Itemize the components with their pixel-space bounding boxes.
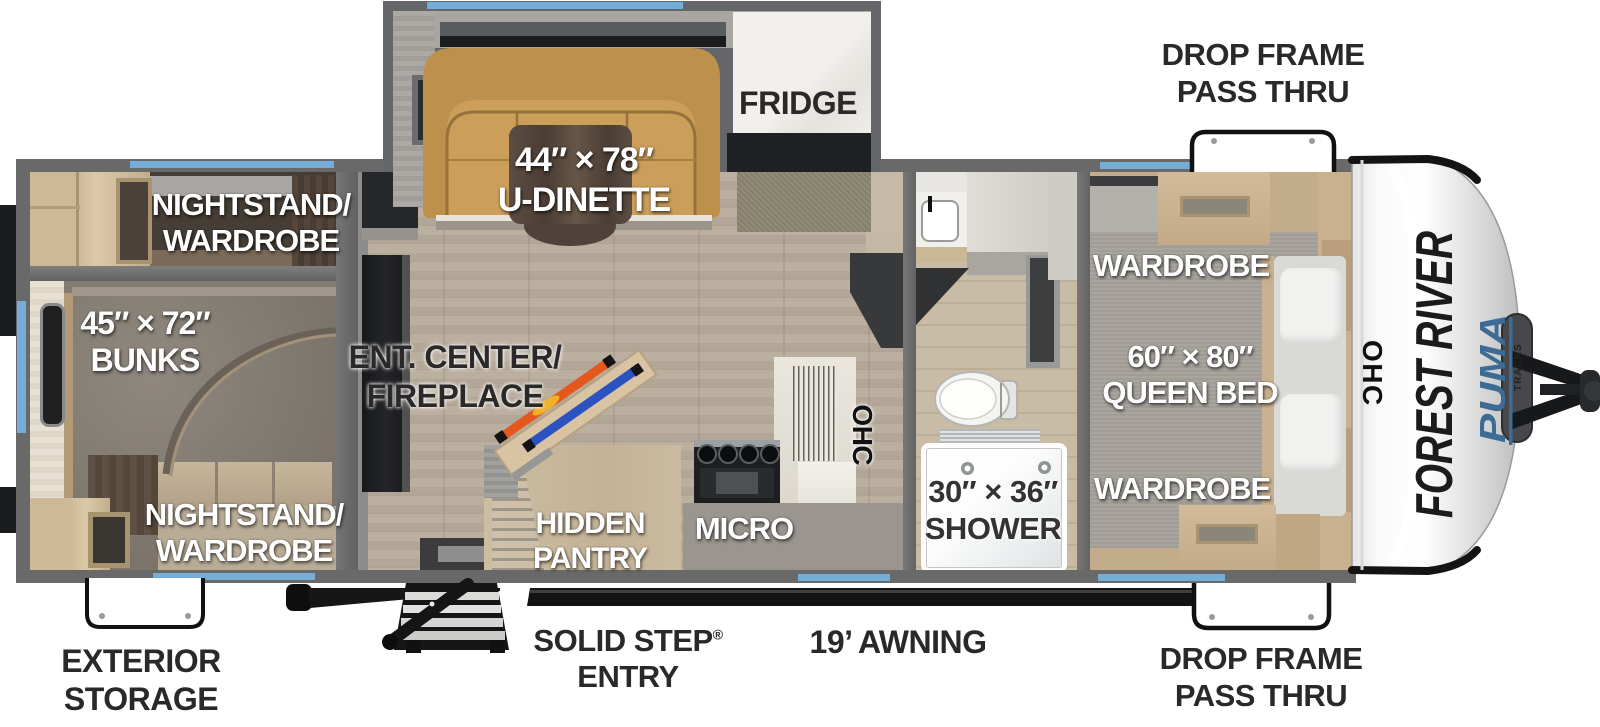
svg-text:TRACKS: TRACKS — [1513, 343, 1524, 391]
svg-text:OHC: OHC — [1357, 340, 1388, 407]
svg-text:PUMA: PUMA — [1472, 314, 1513, 443]
svg-text:FOREST RIVER: FOREST RIVER — [1406, 231, 1464, 518]
